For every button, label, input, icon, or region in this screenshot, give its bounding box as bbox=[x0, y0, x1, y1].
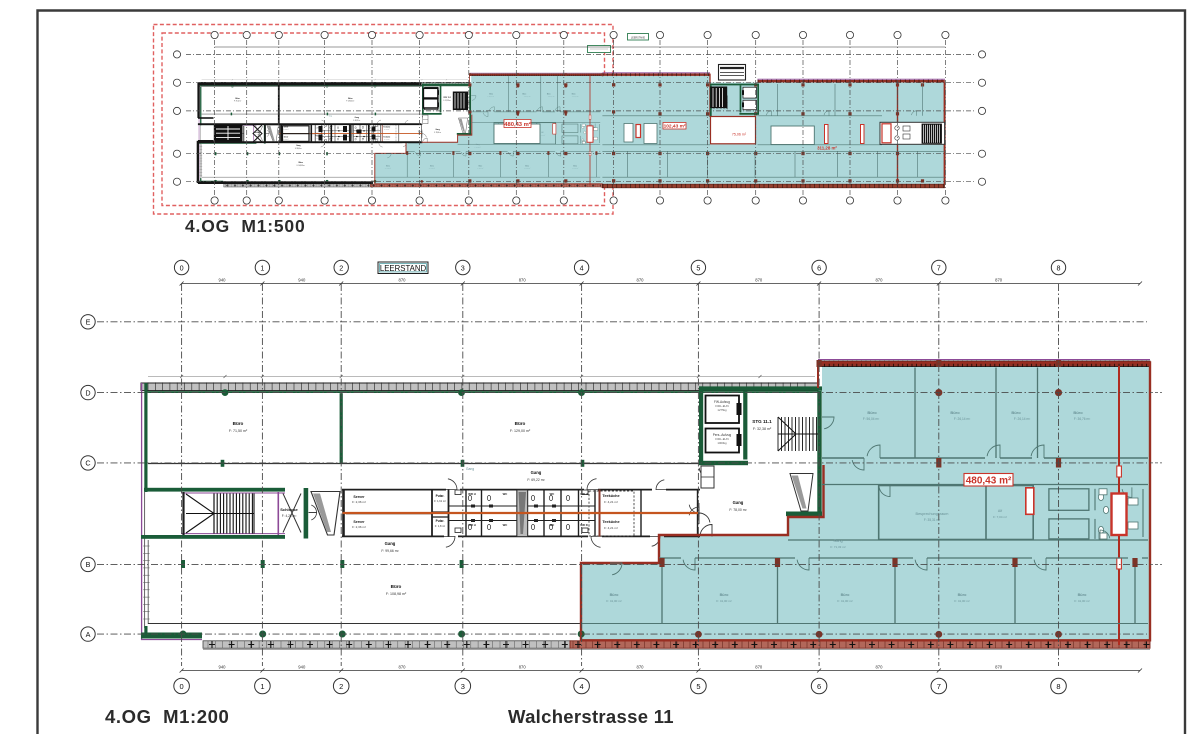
svg-text:Alf: Alf bbox=[998, 509, 1002, 513]
svg-text:WR H: WR H bbox=[468, 492, 475, 496]
svg-text:Büro: Büro bbox=[515, 421, 526, 426]
svg-text:Büro: Büro bbox=[1011, 410, 1021, 415]
svg-text:940: 940 bbox=[219, 664, 227, 669]
svg-text:WC: WC bbox=[550, 492, 555, 496]
svg-text:WC: WC bbox=[550, 523, 555, 527]
svg-text:5: 5 bbox=[696, 263, 700, 272]
svg-text:870: 870 bbox=[637, 664, 645, 669]
svg-text:F: 26,14 m²: F: 26,14 m² bbox=[1014, 417, 1030, 421]
svg-text:F: 41,00 m²: F: 41,00 m² bbox=[1074, 599, 1089, 603]
svg-text:F: 4,20 m²: F: 4,20 m² bbox=[282, 514, 297, 518]
svg-text:Putzr.: Putzr. bbox=[436, 494, 445, 498]
svg-text:WC: WC bbox=[503, 492, 508, 496]
svg-text:3: 3 bbox=[461, 682, 465, 691]
svg-text:E: E bbox=[86, 318, 91, 327]
svg-text:F: 41,00 m²: F: 41,00 m² bbox=[606, 599, 621, 603]
svg-text:311,28 m²: 311,28 m² bbox=[817, 146, 837, 151]
svg-text:Server: Server bbox=[353, 520, 365, 524]
svg-text:940: 940 bbox=[298, 278, 306, 283]
svg-text:Büro: Büro bbox=[950, 410, 960, 415]
svg-text:7: 7 bbox=[937, 682, 941, 691]
svg-text:870: 870 bbox=[519, 664, 527, 669]
svg-text:940: 940 bbox=[219, 278, 227, 283]
svg-text:Büro: Büro bbox=[867, 410, 877, 415]
svg-text:F: 1,8 m²: F: 1,8 m² bbox=[435, 524, 446, 528]
svg-text:102,43 m²: 102,43 m² bbox=[664, 124, 686, 130]
svg-text:870: 870 bbox=[995, 278, 1003, 283]
svg-text:LEERSTAND: LEERSTAND bbox=[631, 37, 645, 40]
svg-text:F: 35,31 m²: F: 35,31 m² bbox=[924, 518, 940, 522]
svg-text:Besprechungsraum: Besprechungsraum bbox=[916, 512, 949, 516]
svg-text:940: 940 bbox=[298, 664, 306, 669]
svg-text:4.OG M1:200: 4.OG M1:200 bbox=[105, 706, 229, 727]
svg-text:Teeküche: Teeküche bbox=[602, 494, 619, 498]
svg-text:4: 4 bbox=[580, 682, 584, 691]
svg-text:Büro: Büro bbox=[841, 593, 851, 597]
svg-text:870: 870 bbox=[875, 664, 883, 669]
svg-text:870: 870 bbox=[399, 664, 407, 669]
svg-text:STG 11.1: STG 11.1 bbox=[752, 419, 772, 424]
svg-text:F: 41,00 m²: F: 41,00 m² bbox=[716, 599, 731, 603]
svg-text:F: 36,76 m²: F: 36,76 m² bbox=[1074, 417, 1090, 421]
svg-text:F: 7,04 m²: F: 7,04 m² bbox=[993, 515, 1007, 519]
svg-text:1: 1 bbox=[260, 682, 264, 691]
svg-text:0: 0 bbox=[180, 682, 184, 691]
svg-text:A: A bbox=[86, 630, 91, 639]
svg-text:1275kg: 1275kg bbox=[717, 408, 727, 412]
svg-text:LEERSTAND: LEERSTAND bbox=[380, 264, 427, 273]
svg-text:F: 108,98 m²: F: 108,98 m² bbox=[386, 592, 407, 596]
svg-text:F: 78,00 m²: F: 78,00 m² bbox=[729, 508, 747, 512]
svg-text:Teeküche: Teeküche bbox=[602, 520, 619, 524]
svg-text:D: D bbox=[85, 388, 90, 397]
svg-text:2: 2 bbox=[339, 682, 343, 691]
svg-text:5: 5 bbox=[696, 682, 700, 691]
svg-text:1: 1 bbox=[260, 263, 264, 272]
svg-text:Putzr.: Putzr. bbox=[436, 519, 445, 523]
svg-text:870: 870 bbox=[755, 664, 763, 669]
svg-text:F: 129,00 m²: F: 129,00 m² bbox=[510, 429, 531, 433]
svg-text:F: 71,50 m²: F: 71,50 m² bbox=[229, 429, 248, 433]
svg-text:F: 4,21 m²: F: 4,21 m² bbox=[604, 526, 618, 530]
svg-text:Gang: Gang bbox=[466, 467, 474, 471]
svg-text:Büro: Büro bbox=[610, 593, 620, 597]
svg-text:B: B bbox=[86, 560, 91, 569]
svg-text:3: 3 bbox=[461, 263, 465, 272]
svg-text:Walcherstrasse 11: Walcherstrasse 11 bbox=[508, 706, 674, 727]
svg-text:7: 7 bbox=[937, 263, 941, 272]
svg-text:Büro: Büro bbox=[1073, 410, 1083, 415]
svg-text:Büro: Büro bbox=[720, 593, 730, 597]
svg-text:F: 2,36 m²: F: 2,36 m² bbox=[352, 500, 366, 504]
svg-text:4: 4 bbox=[580, 263, 584, 272]
svg-text:F: 41,00 m²: F: 41,00 m² bbox=[837, 599, 852, 603]
svg-text:2: 2 bbox=[339, 263, 343, 272]
svg-text:Server: Server bbox=[353, 495, 365, 499]
svg-text:6: 6 bbox=[817, 263, 821, 272]
svg-text:F: 4,21 m²: F: 4,21 m² bbox=[604, 500, 618, 504]
svg-text:Büro: Büro bbox=[391, 584, 402, 589]
svg-text:Schleuse: Schleuse bbox=[280, 507, 298, 512]
svg-text:F: 99,66 m²: F: 99,66 m² bbox=[381, 549, 399, 553]
svg-text:1000kg: 1000kg bbox=[717, 441, 727, 445]
svg-text:C: C bbox=[85, 459, 90, 468]
svg-text:870: 870 bbox=[637, 278, 645, 283]
svg-text:75,06 m²: 75,06 m² bbox=[732, 133, 747, 137]
svg-text:480,43 m²: 480,43 m² bbox=[966, 475, 1012, 486]
svg-text:480,43 m²: 480,43 m² bbox=[504, 121, 530, 128]
svg-text:F: 26,14 m²: F: 26,14 m² bbox=[954, 417, 970, 421]
svg-text:Büro: Büro bbox=[958, 593, 968, 597]
svg-text:4.OG M1:500: 4.OG M1:500 bbox=[185, 216, 305, 236]
svg-text:870: 870 bbox=[755, 278, 763, 283]
svg-text:870: 870 bbox=[519, 278, 527, 283]
svg-text:F: 69,22 m²: F: 69,22 m² bbox=[527, 478, 545, 482]
svg-text:0: 0 bbox=[180, 263, 184, 272]
svg-text:Büro: Büro bbox=[233, 421, 244, 426]
svg-text:WC: WC bbox=[503, 523, 508, 527]
svg-text:F: 1,61 m²: F: 1,61 m² bbox=[434, 499, 446, 503]
svg-text:Gang: Gang bbox=[833, 539, 842, 543]
svg-text:F: 41,00 m²: F: 41,00 m² bbox=[954, 599, 969, 603]
svg-text:Gang: Gang bbox=[733, 500, 744, 505]
svg-text:F: 56,04 m²: F: 56,04 m² bbox=[863, 417, 879, 421]
svg-text:6: 6 bbox=[817, 682, 821, 691]
svg-text:F: 2,36 m²: F: 2,36 m² bbox=[352, 525, 366, 529]
svg-text:F: 32,38 m²: F: 32,38 m² bbox=[753, 427, 772, 431]
svg-text:Büro: Büro bbox=[1078, 593, 1088, 597]
svg-text:8: 8 bbox=[1056, 682, 1060, 691]
svg-text:870: 870 bbox=[399, 278, 407, 283]
svg-text:WR H: WR H bbox=[468, 523, 475, 527]
svg-text:870: 870 bbox=[995, 664, 1003, 669]
svg-text:8: 8 bbox=[1057, 263, 1061, 272]
svg-text:870: 870 bbox=[875, 278, 883, 283]
svg-text:F: 71,33 m²: F: 71,33 m² bbox=[830, 545, 845, 549]
svg-text:Gang: Gang bbox=[531, 470, 542, 475]
svg-text:Gang: Gang bbox=[385, 541, 396, 546]
